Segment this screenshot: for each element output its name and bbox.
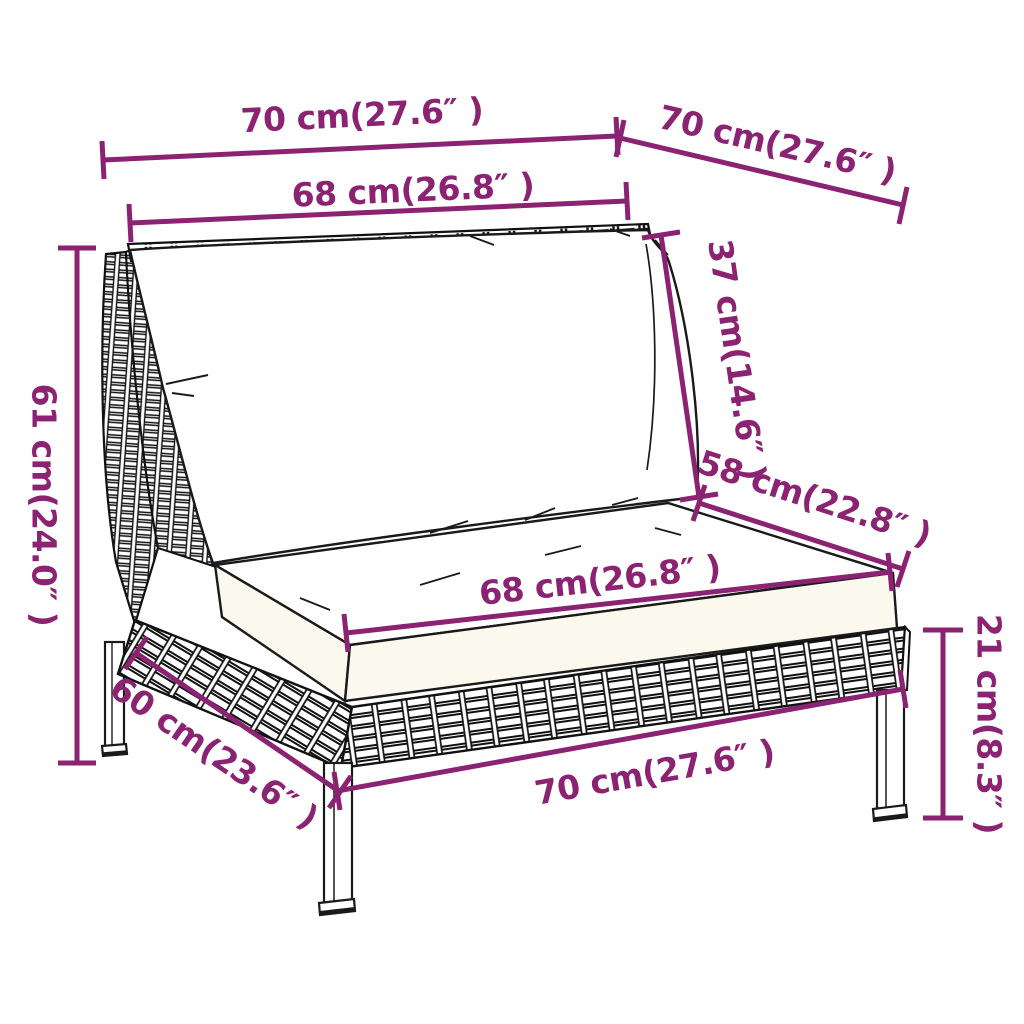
dim-total-height-label: 61 cm(24.0″ ) (25, 384, 64, 627)
sofa-dimension-diagram: 70 cm(27.6″ ) 70 cm(27.6″ ) 68 cm(26.8″ … (0, 0, 1024, 1024)
dim-leg-height-label: 21 cm(8.3″ ) (970, 614, 1009, 834)
dim-leg-height: 21 cm(8.3″ ) (923, 614, 1009, 834)
dim-base-width-label: 70 cm(27.6″ ) (532, 731, 778, 812)
dim-total-height: 61 cm(24.0″ ) (25, 248, 97, 763)
dim-top-width-label: 70 cm(27.6″ ) (240, 90, 484, 140)
dim-top-width: 70 cm(27.6″ ) (102, 90, 618, 179)
dimension-line (103, 136, 617, 160)
dim-top-depth: 70 cm(27.6″ ) (616, 97, 907, 224)
front-right-leg (873, 690, 907, 821)
diagram-page: 70 cm(27.6″ ) 70 cm(27.6″ ) 68 cm(26.8″ … (0, 0, 1024, 1024)
sofa-sketch (102, 224, 910, 915)
